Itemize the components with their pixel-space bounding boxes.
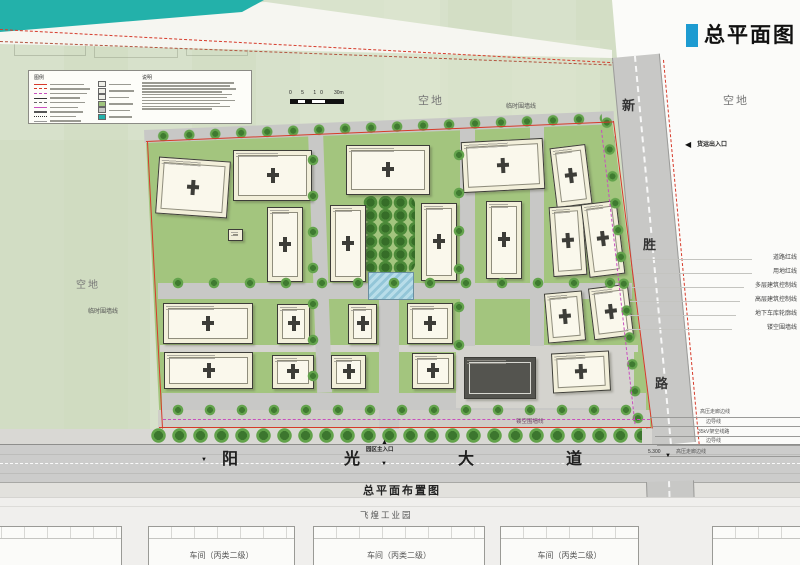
freight-entrance-label: 货运出入口 (697, 142, 727, 148)
tree-row (162, 404, 642, 416)
building (346, 145, 430, 195)
leader-line (632, 287, 744, 288)
stair-core (207, 363, 211, 378)
power-line-label: 边导线 (706, 439, 721, 444)
elevation-marker-icon: ▼ (201, 457, 207, 463)
stair-core (562, 309, 567, 324)
stair-core (347, 364, 351, 379)
power-line (650, 417, 800, 418)
leader-line (630, 301, 740, 302)
boundary-line-label: 道路红线 (773, 255, 797, 261)
elevation-value: 5.300 (648, 450, 661, 455)
pavilion (228, 229, 243, 241)
lane-line (0, 473, 800, 474)
freight-entrance-arrow-icon: ◀ (685, 141, 691, 149)
stair-core (502, 232, 506, 247)
workshop-roof-band (501, 527, 638, 539)
south-avenue-char: 光 (344, 452, 360, 468)
elevation-marker-icon: ▼ (665, 453, 671, 459)
vacant-land-label: 空地 (723, 96, 749, 107)
legend-notes-title: 说明 (142, 74, 236, 81)
workshop-building (0, 526, 122, 565)
power-line-label: 高压走廊边线 (676, 450, 706, 455)
workshop-building: 车间（丙类二级） (148, 526, 295, 565)
stair-core (608, 304, 614, 319)
building (233, 150, 312, 201)
leader-line (636, 273, 752, 274)
building (155, 157, 231, 219)
main-entrance-arrow-icon: ▲ (381, 439, 388, 446)
stair-core (437, 234, 441, 249)
stair-core (346, 236, 350, 251)
building (331, 355, 366, 389)
stair-core (579, 364, 584, 379)
leader-line (626, 329, 732, 330)
legend-notes: 说明 (142, 74, 236, 120)
stair-core (191, 179, 196, 194)
avenue-centerline (0, 463, 800, 464)
building (163, 303, 253, 344)
building (549, 144, 592, 208)
workshop-building: 车间（丙类二级） (313, 526, 485, 565)
tree-row (452, 136, 466, 374)
workshop-roof-band (713, 527, 800, 539)
stair-core (568, 168, 574, 183)
workshop-label: 车间（丙类二级） (149, 552, 294, 560)
stair-core (565, 233, 570, 248)
boundary-line-label: 地下车库轮廓线 (755, 311, 797, 317)
building (164, 352, 253, 389)
workshop-label: 车间（丙类二级） (314, 552, 484, 560)
stair-core (292, 316, 296, 331)
workshop-roof-band (314, 527, 484, 539)
stair-core (501, 157, 506, 172)
stair-core (283, 237, 287, 252)
scale-bar-ticks: 0 5 10 (289, 91, 327, 96)
stair-core (361, 316, 365, 331)
scale-bar-end: 30m (334, 91, 344, 96)
temp-fence-label: 临时围墙线 (506, 104, 536, 110)
industrial-park-label: 飞煌工业园 (360, 511, 413, 520)
south-avenue-char: 大 (458, 452, 474, 468)
legend-linetypes: 图例 (34, 74, 90, 120)
stair-core (431, 363, 435, 378)
stair-core (271, 168, 275, 183)
stair-core (428, 316, 432, 331)
field-patch (0, 140, 150, 430)
building (407, 303, 453, 344)
workshop-building: 车间（丙类二级） (500, 526, 639, 565)
building (461, 138, 546, 193)
entrance-axis-road (379, 298, 399, 444)
power-line (655, 436, 800, 437)
page-title: 总平面图 (704, 25, 796, 46)
avenue-tree-row (148, 427, 642, 444)
legend-symbols (98, 74, 134, 120)
stair-core (600, 231, 606, 246)
power-line-label: 边导线 (706, 420, 721, 425)
building (551, 351, 611, 394)
title-accent-block (686, 24, 698, 47)
power-line-label: 高压走廊边线 (700, 410, 730, 415)
courtyard-trees (363, 196, 415, 272)
boundary-line-label: 高层建筑控制线 (755, 297, 797, 303)
workshop-roof-band (149, 527, 294, 539)
power-line (657, 445, 800, 446)
legend-title: 图例 (34, 74, 90, 81)
stair-core (386, 162, 390, 177)
temp-fence-label: 临时围墙线 (88, 309, 118, 315)
power-line (653, 426, 800, 427)
boundary-line-label: 镂空围墙线 (767, 325, 797, 331)
east-road-char: 胜 (643, 238, 656, 251)
building-dark (464, 357, 536, 399)
workshop-building (712, 526, 800, 565)
building (267, 207, 303, 282)
south-avenue-char: 道 (566, 452, 582, 468)
building (348, 304, 377, 344)
leader-line (628, 315, 736, 316)
scale-bar (290, 99, 344, 104)
building (544, 290, 586, 343)
workshop-label: 车间（丙类二级） (501, 552, 638, 560)
east-road-char: 新 (622, 99, 635, 112)
site-plan-canvas: 图例 说明 (0, 0, 800, 565)
building (330, 205, 366, 282)
workshop-roof-band (0, 527, 121, 539)
power-line (650, 456, 800, 457)
stair-core (206, 316, 210, 331)
tree-row (306, 142, 320, 400)
hollow-fence-line (163, 419, 650, 420)
east-road-char: 路 (655, 377, 668, 390)
leader-line (636, 259, 752, 260)
vacant-land-label: 空地 (76, 281, 100, 291)
hollow-fence-label: 镂空围墙线 (516, 420, 544, 426)
stair-core (291, 364, 295, 379)
boundary-line-label: 用地红线 (773, 269, 797, 275)
legend-box: 图例 说明 (28, 70, 252, 124)
main-entrance-label: 园区主入口 (366, 448, 394, 454)
south-avenue-char: 阳 (222, 452, 238, 468)
building (412, 353, 454, 389)
elevation-marker-icon: ▼ (381, 461, 387, 467)
power-line-label: 35kV架空线路 (698, 430, 729, 435)
building (486, 201, 522, 279)
guide-line (0, 506, 800, 507)
tree-row (160, 277, 630, 289)
vacant-land-label: 空地 (418, 96, 444, 107)
boundary-line-label: 多层建筑控制线 (755, 283, 797, 289)
